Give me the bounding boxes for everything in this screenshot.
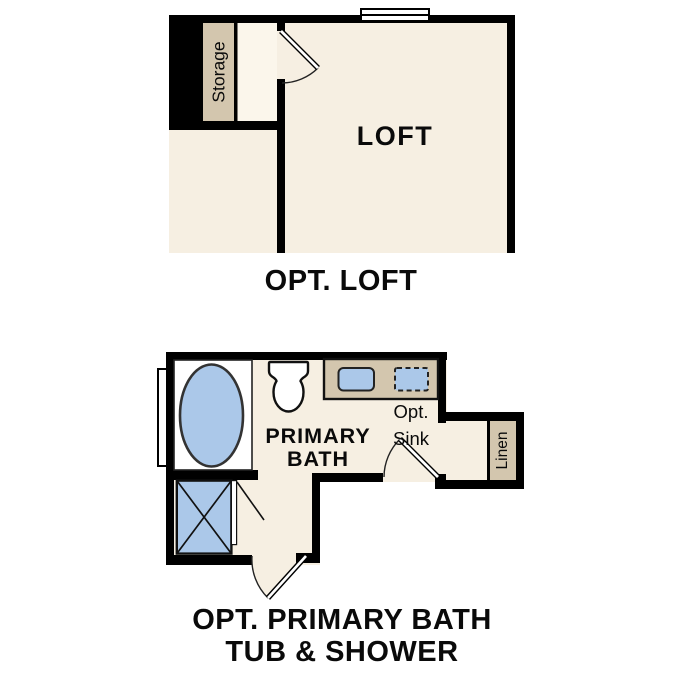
hall-right-wall: [516, 412, 524, 489]
bath-right-lower-wall: [312, 473, 320, 563]
loft-top-wall: [169, 15, 515, 23]
shower-bottom-wall: [166, 555, 252, 565]
bath-caption-line2: TUB & SHOWER: [225, 636, 458, 668]
bath-room-label-line2: BATH: [287, 447, 349, 471]
loft-left-wall: [169, 15, 177, 130]
bath-window-icon: [158, 369, 167, 466]
floor-plans-svg: Storage LOFT OPT. LOFT: [0, 0, 687, 687]
floor-plan-page: Storage LOFT OPT. LOFT: [0, 0, 687, 687]
sink-icon: [339, 368, 375, 391]
opt-sink-label-line1: Opt.: [394, 401, 429, 422]
bath-caption-line1: OPT. PRIMARY BATH: [192, 604, 492, 636]
tub-bottom-wall: [166, 470, 258, 480]
shower-door-panel: [231, 481, 236, 545]
loft-caption: OPT. LOFT: [265, 265, 418, 297]
optional-sink-icon: [395, 368, 428, 391]
loft-window-icon: [361, 9, 429, 21]
bathtub-icon: [180, 365, 243, 467]
opt-sink-label-line2: Sink: [393, 428, 430, 449]
loft-right-wall: [507, 15, 515, 253]
loft-interior-wall-h: [169, 121, 285, 130]
primary-bath-plan: PRIMARY BATH Opt. Sink Linen: [158, 352, 524, 598]
vanity-side-wall: [438, 352, 446, 423]
linen-label: Linen: [494, 432, 511, 470]
storage-label: Storage: [209, 41, 229, 102]
storage-divider-wall: [234, 23, 238, 121]
loft-door-jamb-stub: [277, 23, 285, 31]
loft-room-label: LOFT: [357, 121, 433, 151]
bath-room-label-line1: PRIMARY: [265, 424, 370, 448]
hall-top-wall: [446, 412, 524, 421]
door-opening-floor: [383, 473, 435, 482]
hall-bottom-wall: [435, 480, 524, 489]
closet-floor: [238, 23, 278, 121]
loft-interior-wall-v: [277, 79, 285, 253]
linen-divider-wall: [487, 421, 490, 480]
loft-plan: Storage LOFT: [169, 9, 515, 253]
bath-bottom-wall: [312, 473, 383, 482]
